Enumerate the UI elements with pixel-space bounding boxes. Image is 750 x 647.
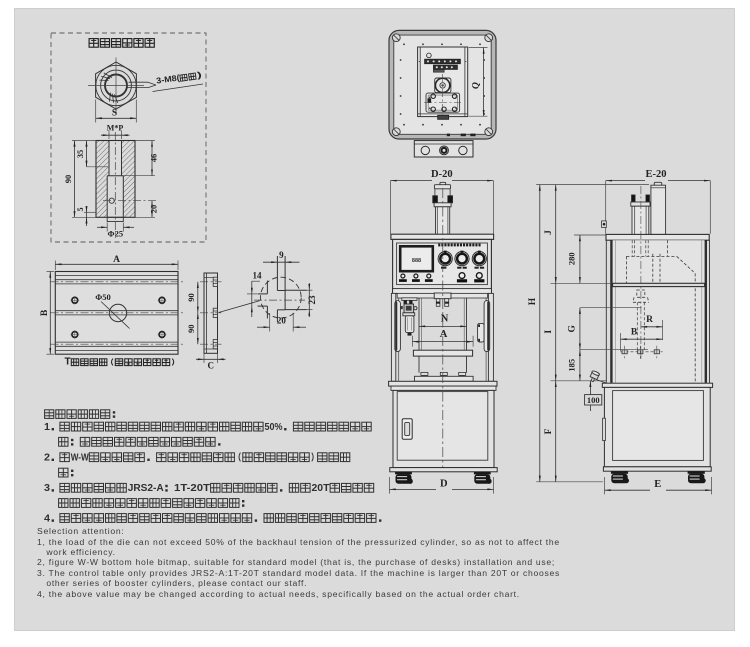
svg-text:2: 2 — [44, 453, 50, 464]
svg-text:9: 9 — [279, 250, 284, 260]
svg-text:20: 20 — [277, 316, 287, 326]
svg-text:M*P: M*P — [107, 124, 124, 133]
svg-text:J: J — [544, 230, 554, 235]
svg-text:14: 14 — [253, 270, 263, 280]
svg-text:90: 90 — [186, 293, 196, 302]
svg-text:20: 20 — [149, 205, 159, 214]
svg-text:F: F — [544, 428, 554, 434]
svg-text:50%: 50% — [265, 422, 283, 433]
svg-text:B: B — [631, 328, 638, 338]
svg-text:Φ50: Φ50 — [95, 292, 111, 302]
svg-text:3: 3 — [44, 483, 50, 494]
svg-text:185: 185 — [566, 359, 576, 372]
svg-text:5: 5 — [76, 208, 85, 212]
svg-text:A: A — [113, 255, 120, 265]
svg-text:35: 35 — [75, 150, 85, 159]
svg-text:1T-20T: 1T-20T — [174, 483, 211, 494]
svg-text:E: E — [654, 479, 661, 490]
svg-text:D: D — [440, 478, 448, 489]
svg-text:Q: Q — [471, 82, 481, 89]
svg-text:4: 4 — [44, 513, 50, 524]
svg-text:E-20: E-20 — [646, 169, 667, 180]
svg-text:JRS2-A: JRS2-A — [128, 483, 165, 494]
svg-text:H: H — [528, 297, 538, 305]
svg-text:100: 100 — [587, 395, 600, 405]
svg-text:90: 90 — [186, 324, 196, 333]
svg-text:A: A — [440, 329, 448, 340]
svg-text:R: R — [646, 315, 653, 325]
svg-text:N: N — [441, 313, 449, 324]
svg-text:20T: 20T — [312, 483, 331, 494]
svg-text:S: S — [112, 109, 117, 119]
svg-text:280: 280 — [566, 252, 576, 265]
svg-text:90: 90 — [63, 175, 73, 184]
svg-text:I: I — [544, 330, 554, 334]
svg-text:T: T — [65, 357, 71, 368]
svg-text:C: C — [207, 361, 214, 371]
svg-text:W-W: W-W — [71, 453, 89, 464]
svg-text:46: 46 — [149, 154, 159, 163]
svg-text:23: 23 — [307, 295, 317, 305]
svg-text:Φ25: Φ25 — [108, 229, 124, 239]
svg-text:): ) — [196, 69, 202, 80]
svg-text:3-M8(: 3-M8( — [156, 72, 181, 85]
svg-text:G: G — [567, 324, 577, 332]
svg-text:D-20: D-20 — [431, 169, 453, 180]
svg-text:1: 1 — [44, 422, 50, 433]
svg-text:888: 888 — [412, 258, 421, 264]
svg-text:B: B — [40, 309, 50, 316]
